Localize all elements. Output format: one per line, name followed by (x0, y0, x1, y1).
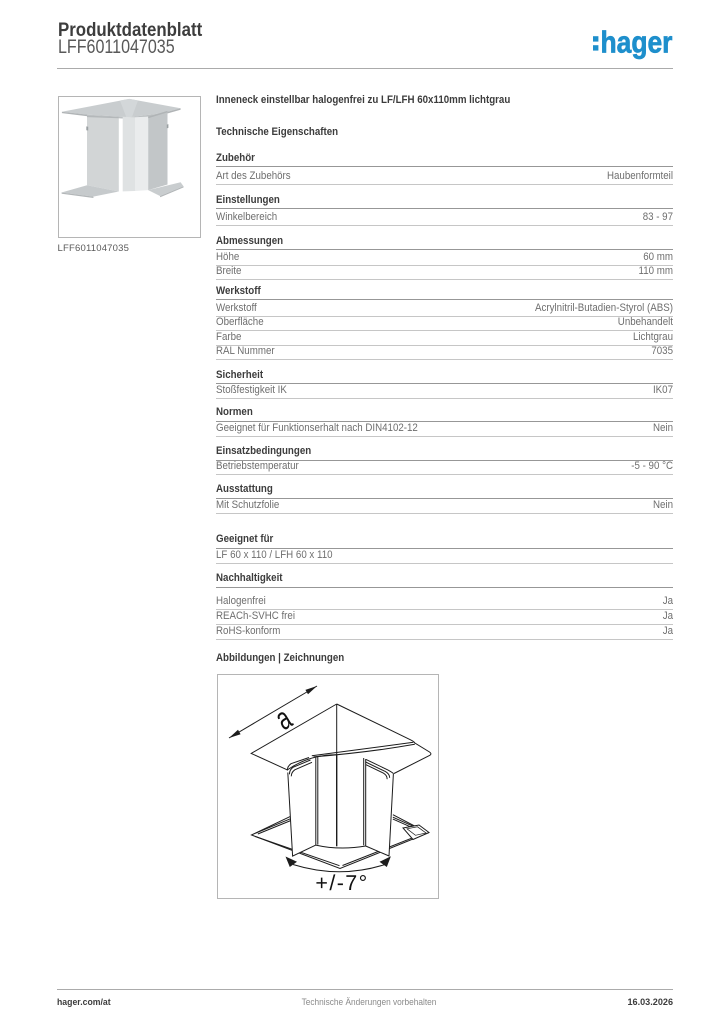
svg-text:hager: hager (601, 26, 673, 60)
svg-text:a: a (269, 701, 298, 738)
svg-text:+/-7°: +/-7° (315, 871, 368, 895)
